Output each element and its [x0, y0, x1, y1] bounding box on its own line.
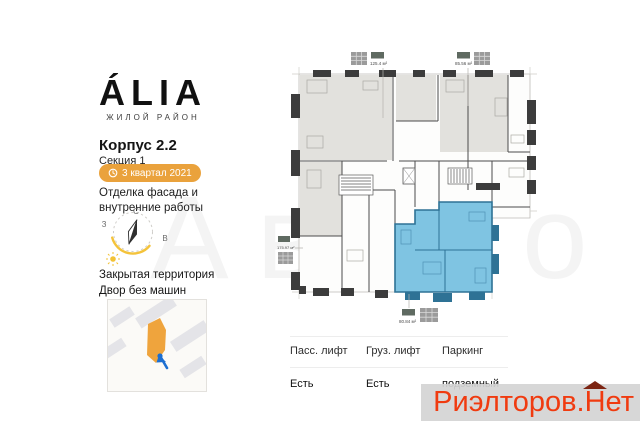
- status-line-1: Отделка фасада и: [99, 186, 203, 201]
- area-left: 175.97 м²: [277, 245, 295, 250]
- compass: С З В: [95, 203, 175, 271]
- area-top-right: 85.56 м²: [455, 61, 473, 66]
- amenities-header-passenger-lift: Пасс. лифт: [290, 337, 366, 368]
- location-map: [107, 299, 207, 392]
- apartment-label-top-left: 125.4 м²: [351, 52, 388, 66]
- building-title: Корпус 2.2: [99, 137, 177, 154]
- house-roof-icon: [583, 381, 607, 389]
- agency-watermark: Риэлторов.Нет: [421, 384, 640, 421]
- amenities-header-cargo-lift: Груз. лифт: [366, 337, 442, 368]
- brand-tagline: ЖИЛОЙ РАЙОН: [88, 113, 218, 122]
- amenities-table: Пасс. лифт Груз. лифт Паркинг Есть Есть …: [290, 336, 508, 390]
- compass-needle: [125, 218, 142, 246]
- watermark-suffix: ет: [606, 386, 634, 418]
- watermark-prefix: Риэлторов.: [433, 386, 584, 418]
- compass-west-label: З: [102, 220, 107, 229]
- sun-icon: [106, 252, 120, 266]
- apartment-label-top-right: 85.56 м²: [455, 52, 490, 66]
- compass-north-label: С: [133, 207, 139, 216]
- completion-badge: 3 квартал 2021: [99, 164, 201, 182]
- amenities-header-parking: Паркинг: [442, 337, 508, 368]
- map-highlighted-building: [147, 318, 166, 363]
- agency-watermark-text: Риэлторов.Нет: [433, 388, 634, 417]
- area-selected: 80.84 м²: [399, 319, 417, 324]
- watermark-house-letter: Н: [585, 388, 606, 417]
- clock-icon: [108, 168, 118, 178]
- map-pin-icon: [157, 353, 168, 368]
- completion-badge-label: 3 квартал 2021: [122, 168, 192, 179]
- floor-plan: 125.4 м² 85.56 м² 175.97 м² 80.84 м²: [283, 40, 545, 332]
- apartment-label-left: 175.97 м²: [277, 236, 295, 264]
- area-top-left: 125.4 м²: [370, 61, 388, 66]
- compass-east-label: В: [162, 234, 167, 243]
- feature-closed-territory: Закрытая территория: [99, 269, 214, 281]
- brand-logo: ÁLIA: [88, 72, 218, 114]
- listing-image: Авито ÁLIA ЖИЛОЙ РАЙОН Корпус 2.2 Секция…: [0, 0, 640, 426]
- feature-no-cars: Двор без машин: [99, 285, 186, 297]
- amenities-value-passenger-lift: Есть: [290, 368, 366, 390]
- apartment-label-selected: 80.84 м²: [399, 308, 438, 324]
